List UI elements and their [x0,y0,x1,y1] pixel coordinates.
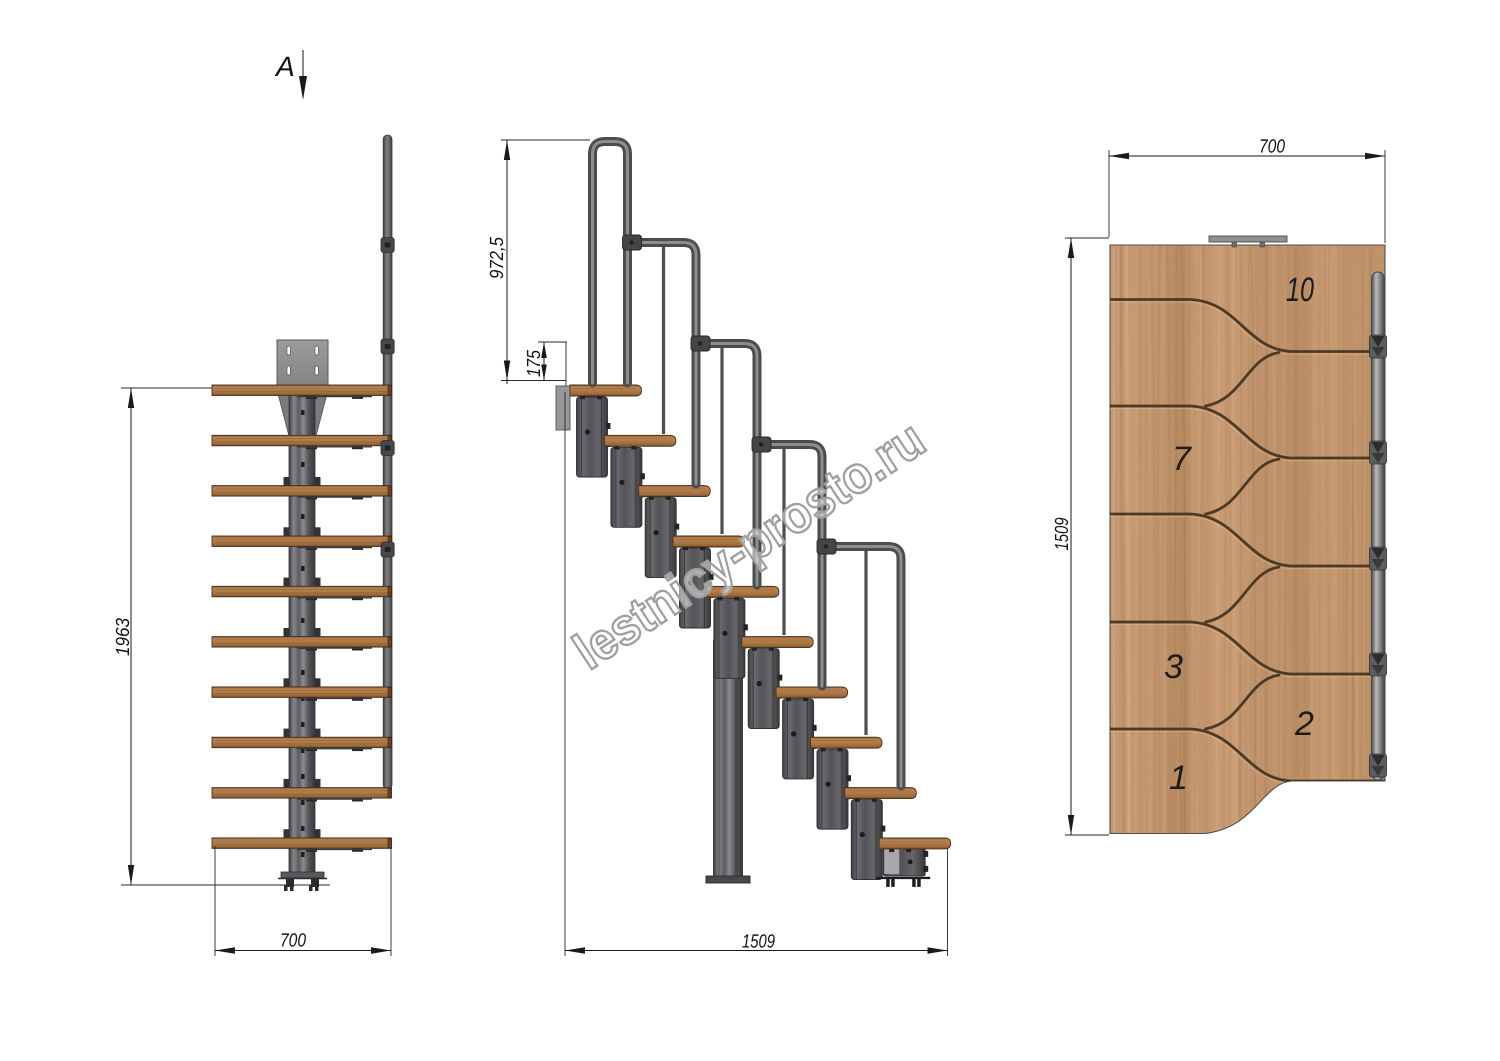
svg-text:3: 3 [1164,648,1183,686]
svg-text:1: 1 [1169,759,1188,797]
svg-text:1509: 1509 [742,932,775,953]
svg-text:700: 700 [280,931,306,952]
svg-text:700: 700 [1259,137,1285,158]
svg-text:175: 175 [524,350,545,377]
svg-text:1509: 1509 [1052,517,1073,550]
svg-text:10: 10 [1286,271,1314,309]
svg-text:972,5: 972,5 [487,237,508,279]
svg-text:A: A [274,51,295,82]
svg-text:2: 2 [1294,705,1314,743]
svg-text:7: 7 [1172,440,1192,478]
svg-text:1963: 1963 [113,618,134,656]
